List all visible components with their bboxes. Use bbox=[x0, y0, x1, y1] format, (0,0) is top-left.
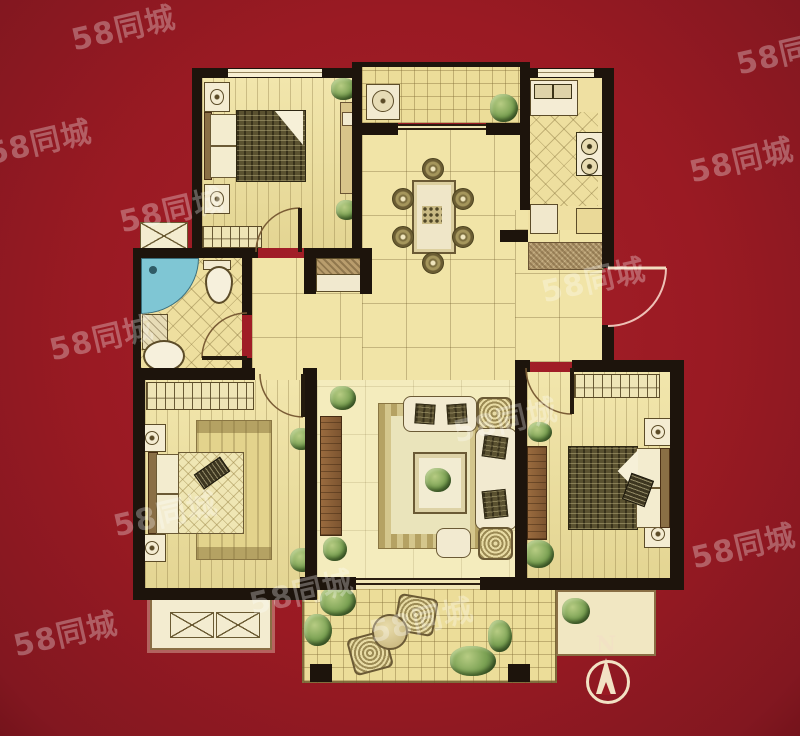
balcony-sliding-door bbox=[398, 124, 486, 134]
nightstand bbox=[644, 418, 672, 446]
sofa-cushion bbox=[414, 403, 435, 424]
window bbox=[228, 68, 322, 78]
balcony-sliding-door bbox=[356, 578, 480, 589]
shoe-cabinet bbox=[316, 274, 362, 292]
wall bbox=[133, 588, 317, 600]
wall bbox=[362, 123, 398, 135]
potted-plant bbox=[488, 620, 512, 652]
washing-machine-drum bbox=[372, 90, 394, 112]
wall bbox=[304, 258, 316, 294]
ac-platform bbox=[140, 222, 188, 250]
wardrobe bbox=[146, 382, 254, 410]
ottoman bbox=[436, 528, 471, 558]
tv-cabinet bbox=[320, 416, 342, 536]
pillow bbox=[210, 114, 238, 146]
potted-plant bbox=[330, 386, 356, 410]
potted-plant bbox=[425, 468, 451, 492]
dining-chair bbox=[422, 252, 444, 274]
pillow bbox=[210, 146, 238, 178]
balcony-rail bbox=[362, 62, 520, 67]
bedroom1-door bbox=[252, 204, 302, 256]
site-watermark: 58同城 bbox=[686, 511, 799, 578]
compass-arrow-notch bbox=[601, 682, 611, 695]
site-watermark: 58同城 bbox=[8, 599, 121, 666]
fridge bbox=[576, 208, 604, 234]
dining-chair bbox=[422, 158, 444, 180]
table-centerpiece bbox=[422, 206, 442, 224]
window bbox=[538, 68, 594, 78]
potted-plant bbox=[323, 537, 347, 561]
dining-chair bbox=[452, 188, 474, 210]
wall bbox=[480, 577, 517, 590]
bay-window bbox=[150, 598, 272, 650]
wall bbox=[300, 577, 356, 590]
armchair bbox=[477, 397, 512, 430]
potted-plant bbox=[450, 646, 496, 676]
wall bbox=[486, 123, 520, 135]
potted-plant bbox=[528, 422, 552, 442]
wall bbox=[515, 578, 684, 590]
balcony-table bbox=[372, 614, 408, 650]
bathroom-door bbox=[200, 311, 252, 363]
site-watermark: 58同城 bbox=[66, 0, 179, 59]
entry-doormat bbox=[528, 242, 604, 270]
potted-plant bbox=[562, 598, 590, 624]
wall bbox=[572, 360, 684, 372]
burner bbox=[581, 158, 598, 175]
wall bbox=[133, 248, 141, 380]
shower-head bbox=[149, 266, 157, 274]
wardrobe bbox=[574, 374, 660, 398]
sofa-cushion bbox=[446, 403, 467, 424]
wall bbox=[133, 368, 255, 380]
bay-window-x bbox=[216, 612, 260, 638]
kitchen-cabinet bbox=[530, 204, 558, 234]
wall bbox=[520, 62, 530, 210]
potted-plant bbox=[304, 614, 332, 646]
tv-bench bbox=[527, 446, 547, 540]
entry-door bbox=[604, 264, 670, 330]
floorplan-screenshot: N 58同城 58同城 58同城 58同城 58同城 58同城 58同城 58同… bbox=[0, 0, 800, 736]
master-bedroom-door bbox=[258, 370, 307, 419]
wall bbox=[192, 68, 202, 258]
sink-basin bbox=[534, 84, 553, 99]
wall bbox=[133, 380, 145, 600]
bed-headboard bbox=[660, 448, 670, 528]
potted-plant bbox=[524, 540, 554, 568]
nightstand bbox=[204, 82, 230, 112]
wall bbox=[352, 62, 362, 258]
sofa-cushion bbox=[482, 434, 509, 459]
site-watermark: 58同城 bbox=[684, 125, 797, 192]
pillow bbox=[156, 494, 180, 534]
balcony-pier bbox=[508, 664, 530, 682]
wall bbox=[242, 258, 252, 315]
dining-chair bbox=[392, 188, 414, 210]
dining-chair bbox=[452, 226, 474, 248]
wall bbox=[602, 68, 614, 268]
sink-basin bbox=[553, 84, 572, 99]
bedroom2-door bbox=[524, 366, 574, 416]
bay-window-x bbox=[170, 612, 214, 638]
wall bbox=[304, 248, 372, 258]
pillow bbox=[156, 454, 180, 494]
site-watermark: 58同城 bbox=[0, 107, 95, 174]
wall bbox=[500, 230, 528, 242]
wall bbox=[133, 248, 258, 258]
wall bbox=[360, 258, 372, 294]
wall bbox=[670, 360, 684, 590]
ac-platform-x bbox=[140, 222, 188, 250]
armchair bbox=[478, 527, 513, 560]
potted-plant bbox=[490, 94, 518, 122]
nightstand bbox=[204, 184, 230, 214]
potted-plant bbox=[320, 586, 356, 616]
burner bbox=[581, 138, 598, 155]
dining-chair bbox=[392, 226, 414, 248]
site-watermark: 58同城 bbox=[731, 17, 800, 84]
sofa-cushion bbox=[482, 489, 509, 519]
compass-north-label: N bbox=[596, 632, 616, 658]
balcony-pier bbox=[310, 664, 332, 682]
wall bbox=[602, 325, 614, 362]
